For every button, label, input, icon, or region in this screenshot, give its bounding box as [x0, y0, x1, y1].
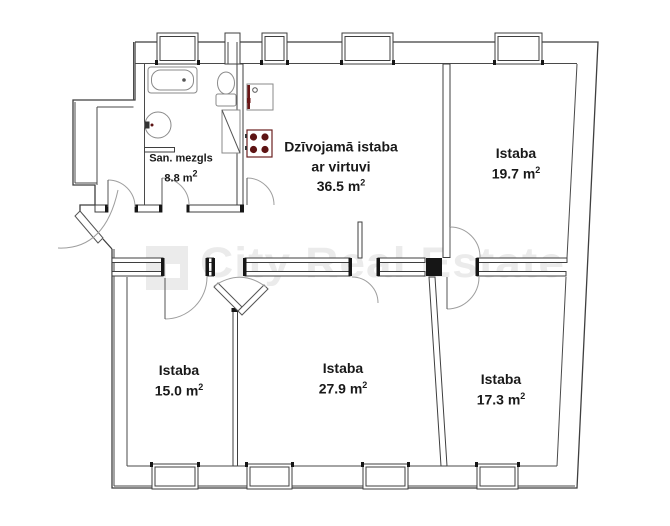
- room-area: 27.9 m2: [319, 379, 368, 399]
- wall-27-17-divider: [429, 277, 447, 466]
- room-name: Istaba: [477, 370, 526, 390]
- window: [247, 464, 292, 489]
- bathtub-icon: [148, 67, 197, 93]
- room-area: 19.7 m2: [492, 164, 541, 184]
- room-name: Istaba: [155, 361, 204, 381]
- entry-door: [58, 190, 118, 248]
- room-label-san-mezgls: San. mezgls 8.8 m2: [149, 151, 213, 188]
- wall-shaft: [225, 33, 240, 64]
- wall-hall-north: [187, 205, 243, 212]
- toilet-icon: [216, 72, 236, 106]
- bathroom-fixtures: [145, 67, 240, 153]
- room-area: 17.3 m2: [477, 390, 526, 410]
- cabinet-icon: [222, 110, 240, 153]
- washbasin-icon: [145, 112, 171, 138]
- floor-plan-drawing: City Real Estate: [0, 0, 670, 526]
- room-label-istaba-17-3: Istaba 17.3 m2: [477, 370, 526, 410]
- door-arc-living: [247, 178, 274, 205]
- entry-door-arc: [58, 190, 118, 248]
- window: [342, 33, 393, 64]
- room-area: 8.8 m2: [149, 168, 213, 188]
- room-label-istaba-27-9: Istaba 27.9 m2: [319, 359, 368, 399]
- room-name-2: ar virtuvi: [284, 157, 398, 177]
- floor-plan: City Real Estate: [0, 0, 670, 526]
- window: [152, 464, 198, 489]
- wall-stub-living: [358, 222, 362, 258]
- room-label-istaba-19-7: Istaba 19.7 m2: [492, 144, 541, 184]
- wall-junction-block: [426, 258, 442, 276]
- stove-icon: [245, 130, 272, 157]
- window: [495, 33, 542, 64]
- window: [477, 464, 518, 489]
- kitchen-fixtures: [245, 84, 273, 157]
- wall-living-19-divider: [443, 64, 450, 258]
- kitchen-sink-icon: [247, 84, 273, 110]
- wall-hall-north: [135, 205, 162, 212]
- window: [363, 464, 408, 489]
- door-arc-lobby: [108, 180, 135, 207]
- room-area: 36.5 m2: [284, 176, 398, 196]
- window: [157, 33, 198, 64]
- watermark-logo-notch: [166, 264, 180, 278]
- room-area: 15.0 m2: [155, 381, 204, 401]
- room-name: Istaba: [492, 144, 541, 164]
- room-name: Dzīvojamā istaba: [284, 137, 398, 157]
- wall-15-27-divider: [233, 311, 238, 466]
- window: [262, 33, 287, 64]
- entry-door-leaf: [75, 211, 103, 243]
- room-label-istaba-15-0: Istaba 15.0 m2: [155, 361, 204, 401]
- room-label-living: Dzīvojamā istaba ar virtuvi 36.5 m2: [284, 137, 398, 196]
- room-name: San. mezgls: [149, 151, 213, 168]
- room-name: Istaba: [319, 359, 368, 379]
